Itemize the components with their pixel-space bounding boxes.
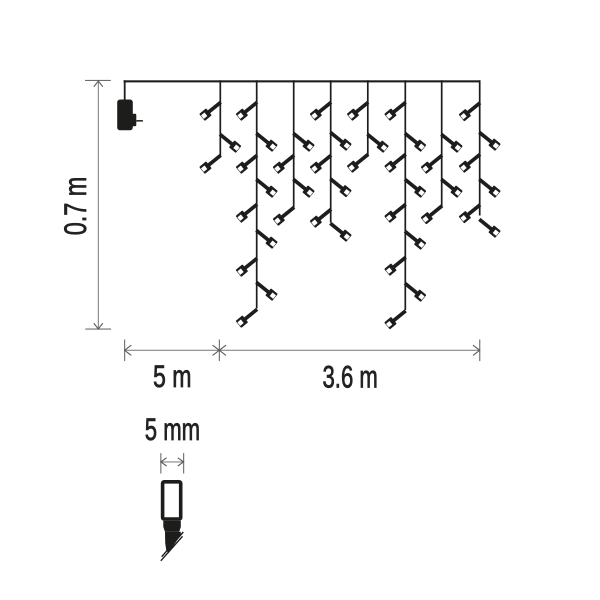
svg-text:5 m: 5 m xyxy=(153,359,192,394)
svg-text:3.6 m: 3.6 m xyxy=(323,360,378,395)
svg-text:5 mm: 5 mm xyxy=(145,412,200,447)
svg-text:0.7 m: 0.7 m xyxy=(58,177,93,236)
